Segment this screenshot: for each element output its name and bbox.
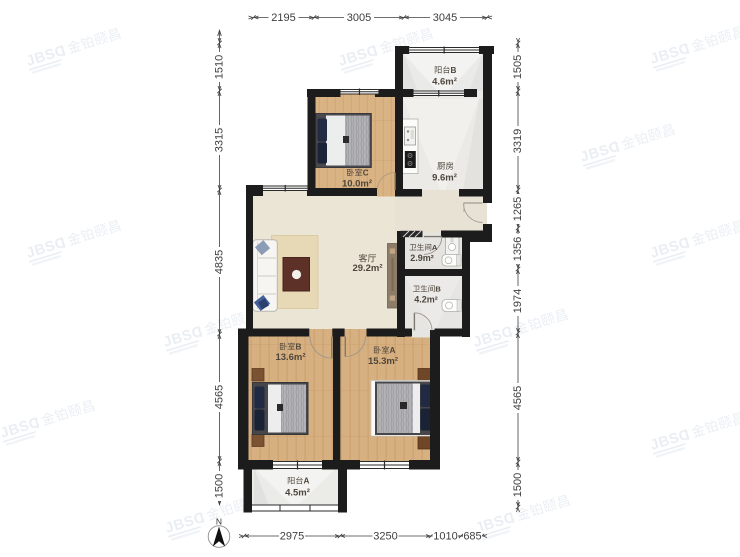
svg-text:1510: 1510 (213, 55, 225, 79)
svg-text:4.6m²: 4.6m² (432, 77, 457, 88)
svg-text:685: 685 (463, 531, 481, 543)
svg-text:B: B (451, 66, 457, 75)
svg-text:2975: 2975 (280, 531, 304, 543)
svg-text:A: A (432, 243, 438, 252)
svg-text:13.6m²: 13.6m² (275, 352, 305, 363)
svg-text:3045: 3045 (433, 12, 457, 24)
svg-text:1356: 1356 (512, 237, 524, 261)
svg-text:2.9m²: 2.9m² (410, 253, 434, 263)
svg-text:4835: 4835 (213, 250, 225, 274)
svg-text:A: A (304, 477, 310, 486)
svg-text:29.2m²: 29.2m² (352, 263, 382, 274)
svg-text:1010: 1010 (433, 531, 457, 543)
svg-text:3250: 3250 (373, 531, 397, 543)
svg-text:10.0m²: 10.0m² (342, 179, 372, 190)
svg-text:1265: 1265 (512, 197, 524, 221)
svg-text:1500: 1500 (213, 474, 225, 498)
svg-text:4.5m²: 4.5m² (285, 488, 310, 499)
svg-text:1505: 1505 (512, 55, 524, 79)
svg-text:N: N (216, 517, 222, 527)
svg-text:3005: 3005 (347, 12, 371, 24)
svg-text:2195: 2195 (271, 12, 295, 24)
svg-text:B: B (435, 285, 441, 294)
svg-text:15.3m²: 15.3m² (368, 356, 398, 367)
svg-text:4565: 4565 (213, 385, 225, 409)
svg-text:B: B (296, 343, 302, 352)
svg-text:4565: 4565 (512, 386, 524, 410)
svg-text:9.6m²: 9.6m² (432, 173, 457, 184)
svg-text:1500: 1500 (512, 473, 524, 497)
svg-text:3319: 3319 (512, 129, 524, 153)
svg-text:1974: 1974 (512, 289, 524, 313)
svg-text:3315: 3315 (213, 128, 225, 152)
svg-text:C: C (363, 169, 369, 178)
svg-text:A: A (390, 346, 396, 355)
svg-text:4.2m²: 4.2m² (414, 295, 438, 305)
